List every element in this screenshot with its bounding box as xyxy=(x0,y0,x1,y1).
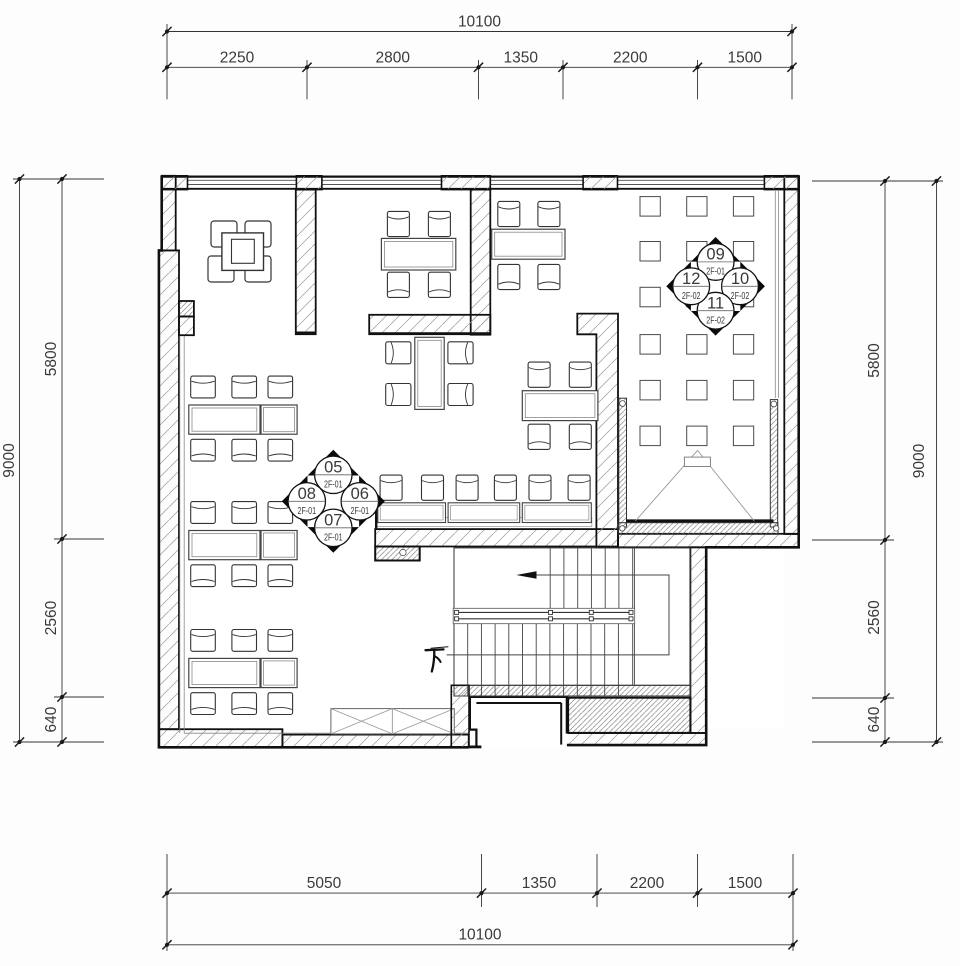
svg-text:640: 640 xyxy=(866,706,883,732)
svg-text:5800: 5800 xyxy=(866,343,883,378)
svg-text:2250: 2250 xyxy=(220,49,255,66)
svg-text:12: 12 xyxy=(682,270,700,288)
svg-text:2200: 2200 xyxy=(630,875,665,892)
svg-text:1500: 1500 xyxy=(728,875,763,892)
svg-text:10: 10 xyxy=(731,270,749,288)
svg-text:06: 06 xyxy=(351,485,369,503)
svg-text:2560: 2560 xyxy=(43,600,60,635)
svg-text:9000: 9000 xyxy=(1,443,18,478)
svg-text:2F-01: 2F-01 xyxy=(297,505,316,517)
svg-text:2F-01: 2F-01 xyxy=(324,531,343,543)
svg-text:05: 05 xyxy=(324,459,342,477)
svg-text:9000: 9000 xyxy=(911,443,928,478)
svg-text:2F-02: 2F-02 xyxy=(706,314,725,326)
svg-text:11: 11 xyxy=(707,295,724,313)
svg-text:2200: 2200 xyxy=(613,49,648,66)
svg-text:10100: 10100 xyxy=(458,14,501,31)
svg-text:08: 08 xyxy=(298,485,316,503)
svg-text:1500: 1500 xyxy=(728,49,763,66)
svg-text:5050: 5050 xyxy=(307,875,342,892)
svg-text:1350: 1350 xyxy=(504,49,539,66)
svg-text:09: 09 xyxy=(706,246,724,264)
svg-text:2800: 2800 xyxy=(376,49,411,66)
svg-text:1350: 1350 xyxy=(522,875,557,892)
svg-text:2560: 2560 xyxy=(866,600,883,635)
svg-text:2F-02: 2F-02 xyxy=(731,290,750,302)
svg-text:10100: 10100 xyxy=(458,927,501,944)
svg-text:2F-01: 2F-01 xyxy=(350,505,369,517)
svg-text:640: 640 xyxy=(43,706,60,732)
svg-text:5800: 5800 xyxy=(43,341,60,376)
svg-text:2F-01: 2F-01 xyxy=(324,478,343,490)
svg-text:07: 07 xyxy=(324,512,342,530)
svg-text:2F-01: 2F-01 xyxy=(706,265,725,277)
svg-text:2F-02: 2F-02 xyxy=(682,290,701,302)
